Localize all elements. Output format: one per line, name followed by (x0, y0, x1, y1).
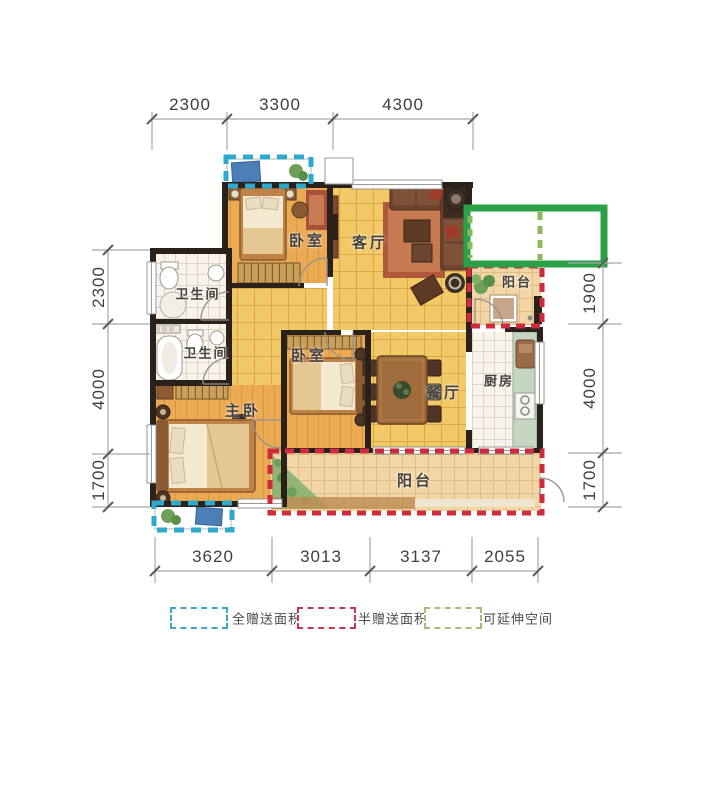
room-label-bedroom-mid: 卧室 (291, 345, 327, 366)
dim-top-2300: 2300 (169, 95, 211, 115)
dim-left-4000: 4000 (89, 368, 109, 410)
dim-right-1900: 1900 (580, 272, 600, 314)
dim-bottom-3137: 3137 (400, 547, 442, 567)
legend-label-half-gift: 半赠送面积 (358, 609, 428, 628)
legend-label-extendable: 可延伸空间 (483, 609, 553, 628)
dim-bottom-2055: 2055 (484, 547, 526, 567)
room-label-dining: 餐厅 (426, 382, 462, 403)
room-label-balcony-right: 阳台 (502, 272, 532, 291)
floorplan-canvas: 2300 3300 4300 3620 3013 3137 2055 2300 … (0, 0, 710, 788)
dim-top-4300: 4300 (382, 95, 424, 115)
dim-left-1700: 1700 (89, 459, 109, 501)
dim-top-3300: 3300 (259, 95, 301, 115)
dim-right-4000: 4000 (580, 367, 600, 409)
room-label-kitchen: 厨房 (484, 371, 514, 390)
overlay-extendable-box (467, 208, 604, 264)
room-label-bath-bottom: 卫生间 (183, 343, 228, 362)
dim-bottom-3013: 3013 (300, 547, 342, 567)
entry-box (325, 158, 353, 184)
furniture-kitchen (513, 332, 537, 450)
room-label-living: 客厅 (352, 232, 388, 253)
legend-label-full-gift: 全赠送面积 (232, 609, 302, 628)
legend-swatch-extendable (424, 607, 482, 629)
dim-bottom-3620: 3620 (192, 547, 234, 567)
dim-left-2300: 2300 (89, 266, 109, 308)
room-label-master: 主卧 (225, 400, 261, 421)
dim-right-1700: 1700 (580, 459, 600, 501)
room-label-bath-top: 卫生间 (175, 284, 220, 303)
legend-swatch-full-gift (170, 607, 228, 629)
room-label-bedroom-top: 卧室 (289, 230, 325, 251)
legend-swatch-half-gift (297, 607, 356, 629)
room-label-balcony-bottom: 阳台 (397, 470, 433, 491)
